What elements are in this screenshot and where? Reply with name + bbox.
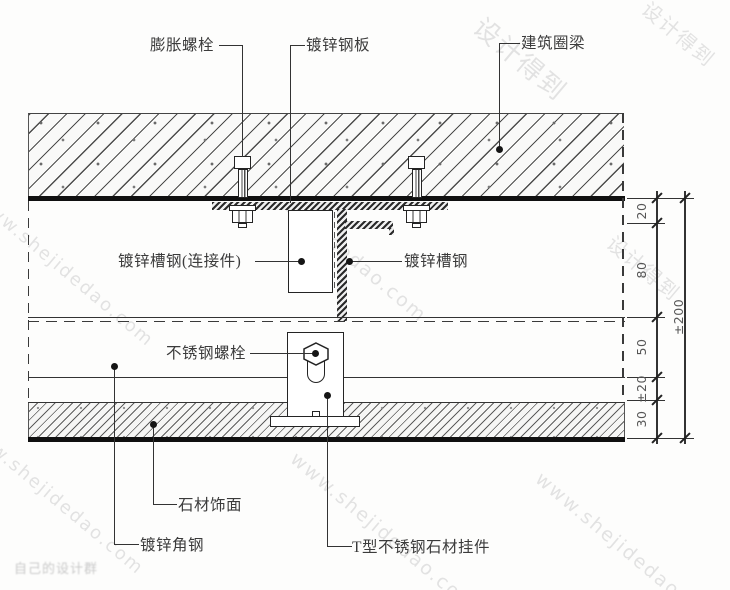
leader-line <box>352 261 402 262</box>
section-line <box>28 317 625 318</box>
angle-steel-line-right <box>344 377 625 378</box>
leader-line <box>114 544 139 545</box>
label-angle-steel: 镀锌角钢 <box>140 537 204 555</box>
leader-line <box>327 546 352 547</box>
break-dashed-line <box>28 321 625 323</box>
leader-line <box>242 45 243 157</box>
leader-line <box>290 45 305 46</box>
leader-line <box>153 504 177 505</box>
left-cut-edge <box>28 201 30 402</box>
leader-line <box>255 261 300 262</box>
t-hanger-flange-bar <box>270 416 360 427</box>
leader-dot <box>324 392 331 399</box>
label-t-hanger: T型不锈钢石材挂件 <box>352 539 490 557</box>
channel-steel-flange <box>345 221 393 229</box>
right-cut-edge <box>622 113 624 402</box>
expansion-bolt-left-anchor <box>234 156 251 169</box>
concrete-ring-beam-hatch <box>28 113 624 198</box>
expansion-bolt-right-anchor <box>408 156 425 169</box>
detail-drawing-canvas: 设计得到 设计得到 www.shejidedao.com www.shejide… <box>0 0 730 590</box>
expansion-bolt-right-shaft <box>412 169 422 198</box>
leader-line <box>114 366 115 545</box>
label-expansion-bolt: 膨胀螺栓 <box>150 37 214 55</box>
expansion-bolt-right-nut <box>406 210 427 223</box>
channel-connector-plate <box>288 210 333 293</box>
leader-line <box>499 43 520 44</box>
dim-value-total: ±200 <box>670 295 686 339</box>
dim-value-30: 30 <box>633 397 649 441</box>
leader-dot <box>298 258 305 265</box>
channel-steel-lip <box>389 228 394 235</box>
concrete-bottom-edge <box>28 196 625 201</box>
watermark-text: www.shejidedao.com <box>531 468 726 590</box>
dim-value-80: 80 <box>633 248 649 292</box>
label-stone-finish: 石材饰面 <box>178 497 242 515</box>
watermark-text: www.shejidedao.com <box>0 418 148 579</box>
leader-dot <box>346 258 353 265</box>
expansion-bolt-right-tip <box>412 223 421 228</box>
leader-dot <box>312 350 319 357</box>
hidden-edge-line <box>334 212 335 291</box>
leader-line <box>153 424 154 505</box>
leader-dot <box>496 146 503 153</box>
dim-value-20: 20 <box>633 189 649 233</box>
label-channel-connector: 镀锌槽钢(连接件) <box>118 253 241 271</box>
label-building-ring-beam: 建筑圈梁 <box>521 35 585 53</box>
stone-top-edge-left <box>28 402 287 403</box>
watermark-text: 设计得到 <box>466 8 576 108</box>
extension-line <box>627 317 665 318</box>
leader-dot <box>111 363 118 370</box>
label-stainless-steel-bolt: 不锈钢螺栓 <box>166 345 246 363</box>
label-channel-steel: 镀锌槽钢 <box>404 253 468 271</box>
watermark-text: www.shejidedao.com <box>286 448 481 590</box>
label-galvanized-steel-plate: 镀锌钢板 <box>306 37 370 55</box>
leader-line <box>327 396 328 547</box>
watermark-text: 设计得到 <box>636 0 722 73</box>
leader-dot <box>150 421 157 428</box>
leader-line <box>499 43 500 148</box>
watermark-stamp: 自己的设计群 <box>14 558 98 577</box>
expansion-bolt-left-tip <box>238 223 247 228</box>
leader-line <box>250 353 313 354</box>
expansion-bolt-left-shaft <box>238 169 248 198</box>
stone-top-edge-right <box>344 402 625 403</box>
leader-line <box>219 45 242 46</box>
angle-steel-line-left <box>28 377 287 378</box>
expansion-bolt-left-nut <box>232 210 253 223</box>
dim-value-50: 50 <box>633 325 649 369</box>
leader-line <box>290 45 291 203</box>
